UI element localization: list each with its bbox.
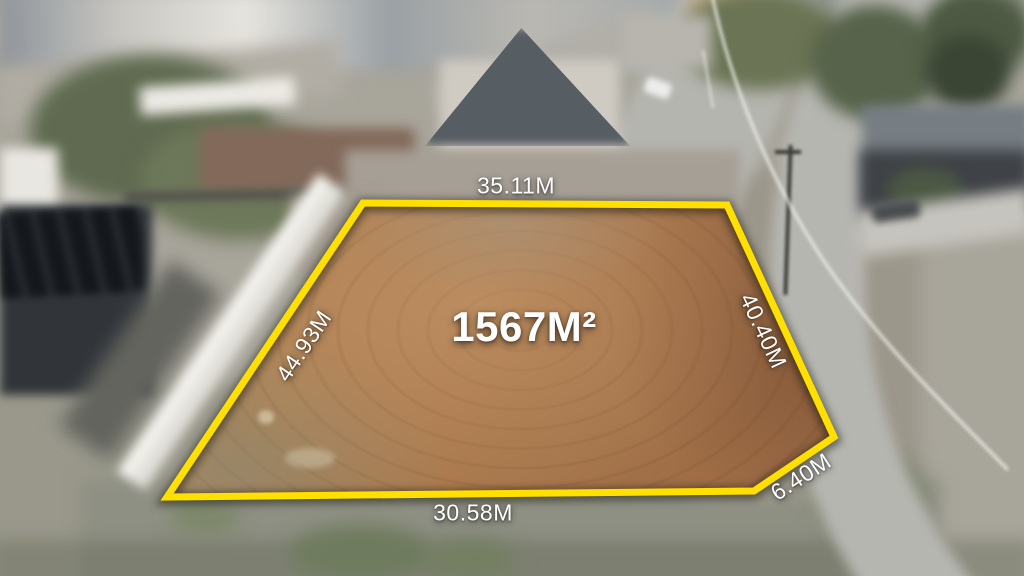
power-pole-crossarm [775, 150, 801, 154]
aerial-photo: 35.11M 44.93M 40.40M 6.40M 30.58M 1567M² [0, 0, 1024, 576]
house-roof-small [622, 15, 712, 70]
solar-panels [0, 206, 144, 298]
tree-canopy-dark [925, 35, 1010, 110]
scrub-patch [425, 540, 515, 576]
dimension-label-top: 35.11M [477, 173, 555, 200]
parcel-area-label: 1567M² [451, 303, 596, 351]
stone [258, 410, 274, 424]
scrub-patch [290, 525, 430, 576]
dimension-label-bottom: 30.58M [433, 500, 513, 527]
scrub-patch [170, 500, 240, 535]
rubble-specks [285, 448, 335, 468]
